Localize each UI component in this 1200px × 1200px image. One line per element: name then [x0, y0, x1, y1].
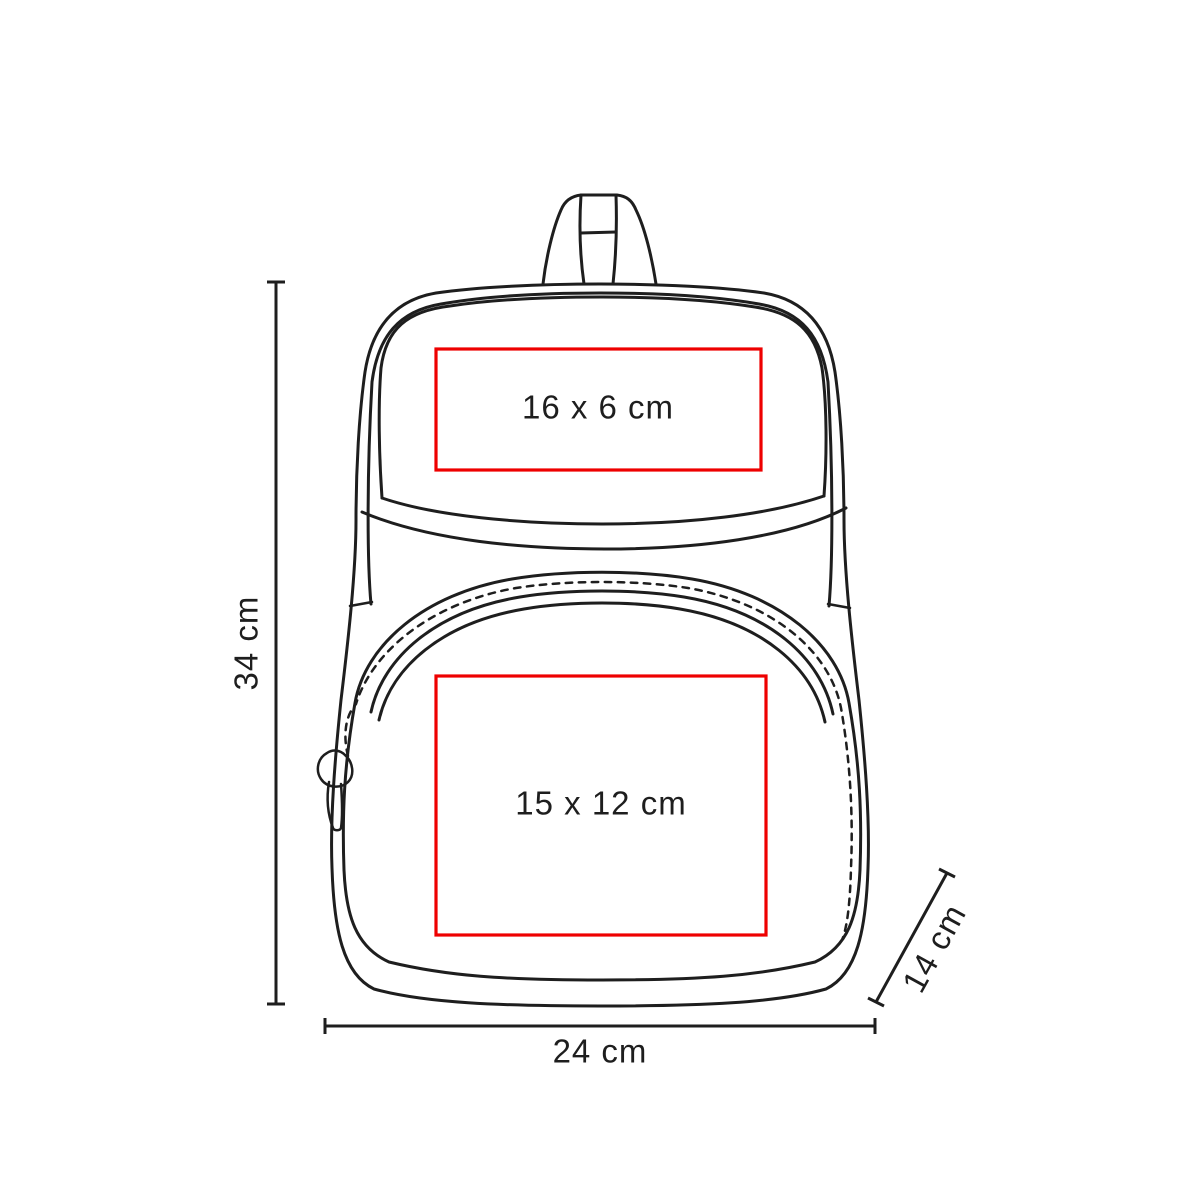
print-area-front-label: 15 x 12 cm	[515, 785, 686, 822]
flap-bottom-trim	[362, 508, 846, 549]
height-label: 34 cm	[228, 596, 265, 691]
flap-bottom-edge	[382, 496, 824, 524]
front-pocket-outline	[343, 572, 860, 980]
left-stitch-mark	[350, 602, 372, 606]
right-stitch-mark	[828, 604, 850, 608]
backpack-drawing	[318, 195, 869, 1006]
pocket-trim-line-1	[371, 591, 833, 714]
handle-outline	[543, 195, 656, 284]
handle-crossbar	[581, 232, 616, 233]
backpack-dimension-diagram: 16 x 6 cm 15 x 12 cm 34 cm 24 cm 14 cm	[0, 0, 1200, 1200]
handle-inner-left	[580, 195, 584, 284]
handle-inner-right	[613, 195, 616, 284]
print-area-top-label: 16 x 6 cm	[522, 389, 674, 426]
width-label: 24 cm	[553, 1033, 648, 1070]
print-areas: 16 x 6 cm 15 x 12 cm	[436, 349, 766, 935]
backpack-diagram-svg: 16 x 6 cm 15 x 12 cm 34 cm 24 cm 14 cm	[0, 0, 1200, 1200]
